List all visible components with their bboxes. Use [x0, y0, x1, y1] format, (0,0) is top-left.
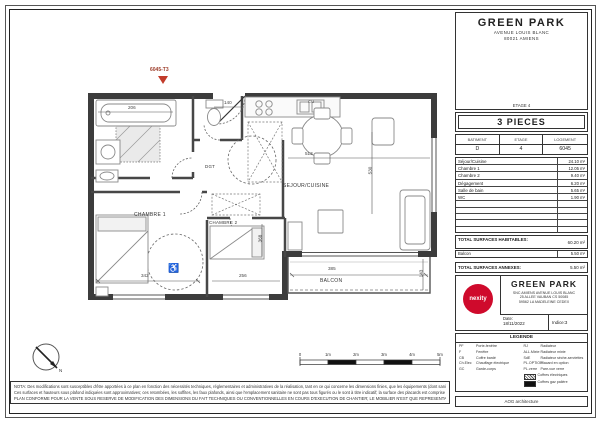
- project-address-line1: AVENUE LOUIS BLANC: [456, 30, 587, 35]
- unit-number-label: 6045-T3: [150, 67, 169, 73]
- total-habitables-value: 60.20 m²: [555, 236, 587, 248]
- surface-value: 9.40 m²: [557, 172, 587, 178]
- dim-chambre2: 256: [239, 273, 247, 278]
- apartment-type-label: 3 PIECES: [458, 115, 585, 129]
- scale-tick-1: 1m: [320, 352, 336, 357]
- room-label-balcon: BALCON: [320, 278, 342, 284]
- surface-label: Chambre 1: [456, 165, 557, 171]
- north-label: N: [59, 368, 62, 373]
- date-cell: Date: 18/11/2022: [500, 315, 549, 330]
- unit-header-logement: LOGEMENT: [543, 135, 587, 145]
- unit-value-batiment: D: [456, 145, 500, 155]
- surfaces-table: Séjour/Cuisine 24.10 m² Chambre 1 12.05 …: [455, 157, 588, 233]
- legend-right-column: RJRadiateur ALL.MixteRadiateur mixte SdE…: [524, 344, 586, 389]
- legend-text: Coffres électriques: [538, 373, 586, 380]
- surface-label: WC: [456, 194, 557, 200]
- nota-line1: NOTA: Des modifications sont susceptible…: [14, 384, 446, 390]
- legend-abbr: GC: [459, 367, 476, 373]
- surface-value: 24.10 m²: [557, 158, 587, 164]
- table-row: Dégagement 6.20 m²: [456, 180, 587, 187]
- scale-tick-2: 2m: [348, 352, 364, 357]
- surface-value: 5.65 m²: [557, 187, 587, 193]
- dim-bathtub: 206: [128, 105, 136, 110]
- room-label-chambre2: CHAMBRE 2: [209, 220, 237, 225]
- project-address-line2: 80021 AMIENS: [456, 36, 587, 41]
- surface-label: Séjour/Cuisine: [456, 158, 557, 164]
- apartment-type-box: 3 PIECES: [455, 112, 588, 132]
- table-row: [456, 227, 587, 233]
- room-label-sejour: SEJOUR/CUISINE: [283, 183, 329, 189]
- legend-box: LEGENDE PFPorte-fenêtre FFenêtre CBCoffr…: [455, 333, 588, 392]
- balcon-row: Balcon 5.50 m²: [455, 250, 588, 258]
- balcon-label: Balcon: [456, 251, 557, 257]
- total-annexes-box: TOTAL SURFACES ANNEXES: 5.50 m²: [455, 262, 588, 273]
- balcon-value: 5.50 m²: [557, 251, 587, 257]
- project-name: GREEN PARK: [456, 17, 587, 29]
- table-row: WC 1.90 m²: [456, 194, 587, 201]
- date-row: Date: 18/11/2022 Indice:3: [500, 314, 587, 330]
- date-value: 18/11/2022: [503, 321, 525, 326]
- total-annexes-label: TOTAL SURFACES ANNEXES:: [456, 265, 555, 271]
- surface-label: Dégagement: [456, 180, 557, 186]
- surface-value: 6.20 m²: [557, 180, 587, 186]
- legend-text: Garde-corps: [476, 367, 521, 373]
- unit-header-etage: ETAGE: [500, 135, 544, 145]
- legend-text: Coffres gaz palière: [538, 380, 586, 387]
- table-row: Séjour/Cuisine 24.10 m²: [456, 158, 587, 165]
- scale-tick-3: 3m: [376, 352, 392, 357]
- hatched-swatch-icon: [524, 374, 536, 380]
- surface-label: Chambre 2: [456, 172, 557, 178]
- developer-project-name: GREEN PARK: [501, 279, 587, 289]
- room-label-chambre1: CHAMBRE 1: [134, 212, 166, 218]
- total-annexes-value: 5.50 m²: [555, 265, 587, 270]
- table-row: Chambre 2 9.40 m²: [456, 172, 587, 179]
- etage-caption: ETAGE 4: [456, 103, 587, 108]
- surface-label: Salle de bain: [456, 187, 557, 193]
- scale-tick-0: 0: [292, 352, 308, 357]
- architect-credit: AOG architecture: [455, 396, 588, 407]
- surface-value: 12.05 m²: [557, 165, 587, 171]
- legend-left-column: PFPorte-fenêtre FFenêtre CBCoffre bardé …: [459, 344, 521, 389]
- scale-tick-4: 4m: [404, 352, 420, 357]
- dim-entry: 140: [224, 100, 232, 105]
- dim-sejour-height: 530: [367, 167, 372, 175]
- developer-box: nexity GREEN PARK SNC AMIENS AVENUE LOUI…: [455, 275, 588, 331]
- room-label-cu: CU: [308, 99, 314, 104]
- legend-title: LEGENDE: [456, 334, 587, 343]
- entry-marker-icon: [158, 76, 168, 84]
- nexity-logo: nexity: [463, 284, 493, 314]
- total-habitables-label: TOTAL SURFACES HABITABLES:: [456, 236, 555, 248]
- indice-value: Indice:3: [549, 315, 587, 330]
- unit-value-etage: 4: [500, 145, 544, 155]
- dim-balcon-depth: 143: [418, 270, 423, 278]
- unit-value-logement: 6045: [543, 145, 587, 155]
- unit-header-batiment: BATIMENT: [456, 135, 500, 145]
- total-habitables-box: TOTAL SURFACES HABITABLES: 60.20 m²: [455, 235, 588, 249]
- solid-swatch-icon: [524, 381, 536, 387]
- nota-line3: PLAN CONFORME POUR LA VENTE SOUS RESERVE…: [14, 396, 446, 402]
- wheelchair-icon: ♿: [168, 264, 179, 273]
- dim-sejour-width: 513: [305, 151, 313, 156]
- table-row: Chambre 1 12.05 m²: [456, 165, 587, 172]
- unit-info-table: BATIMENT ETAGE LOGEMENT D 4 6045: [455, 134, 588, 155]
- nota-box: NOTA: Des modifications sont susceptible…: [10, 381, 450, 404]
- room-label-dgt: DGT: [205, 164, 215, 169]
- developer-address-line3: 59562 LA MADELEINE CEDEX: [501, 300, 587, 305]
- dim-chambre2-height: 368: [257, 235, 262, 243]
- dim-balcon: 385: [328, 266, 336, 271]
- nota-line2: Ces surfaces et hauteurs sous plafond in…: [14, 390, 446, 396]
- project-header-box: GREEN PARK AVENUE LOUIS BLANC 80021 AMIE…: [455, 12, 588, 110]
- scale-tick-5: 5m: [432, 352, 448, 357]
- table-row: Salle de bain 5.65 m²: [456, 187, 587, 194]
- drawing-sheet: 6045-T3 SEJOUR/CUISINE CHAMBRE 1 CHAMBRE…: [0, 0, 600, 422]
- surface-value: 1.90 m²: [557, 194, 587, 200]
- dim-chambre1: 342: [141, 273, 149, 278]
